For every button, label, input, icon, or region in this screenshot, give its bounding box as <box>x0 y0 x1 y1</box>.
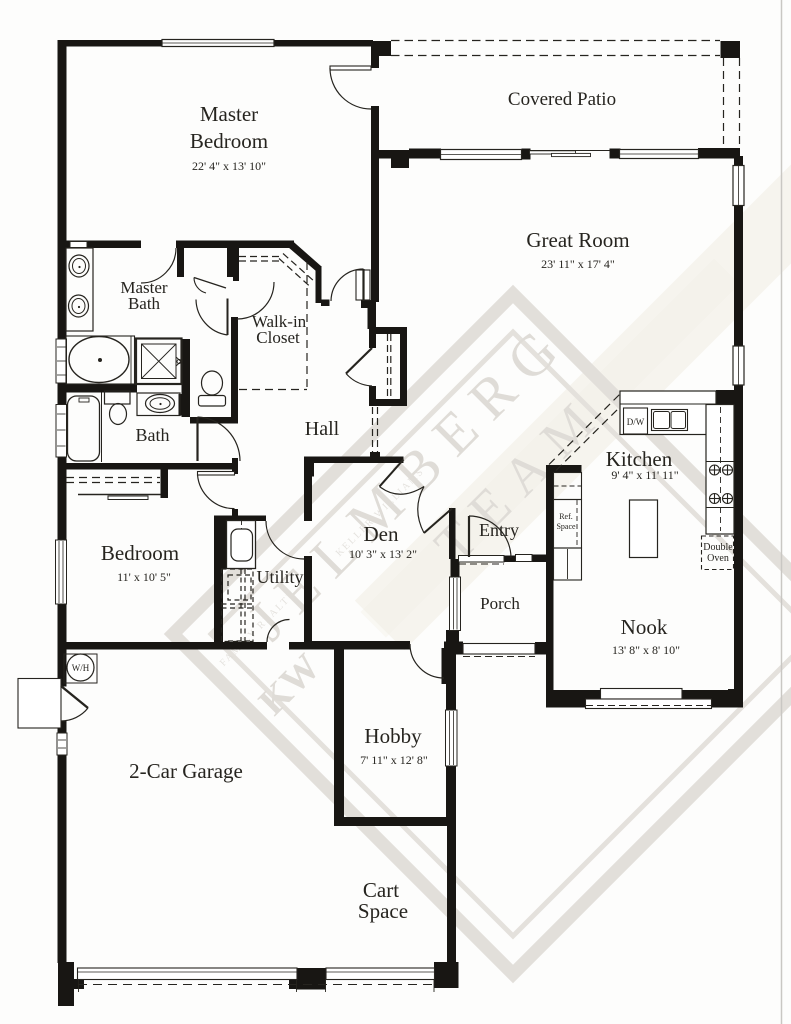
svg-text:Porch: Porch <box>480 594 520 613</box>
svg-text:Den: Den <box>364 522 399 546</box>
svg-text:Hall: Hall <box>305 418 340 440</box>
svg-text:Double: Double <box>703 542 733 553</box>
svg-text:2-Car Garage: 2-Car Garage <box>129 759 243 783</box>
svg-text:Utility: Utility <box>256 567 303 587</box>
svg-text:Ref.: Ref. <box>559 512 573 521</box>
svg-text:Entry: Entry <box>479 520 519 540</box>
svg-text:Bath: Bath <box>136 425 170 445</box>
svg-text:Great Room: Great Room <box>526 228 629 252</box>
svg-text:10' 3" x 13' 2": 10' 3" x 13' 2" <box>349 547 417 561</box>
svg-text:Bath: Bath <box>128 294 161 313</box>
svg-text:7' 11" x 12' 8": 7' 11" x 12' 8" <box>360 753 428 767</box>
svg-text:13' 8" x 8' 10": 13' 8" x 8' 10" <box>612 643 680 657</box>
svg-text:23' 11" x 17' 4": 23' 11" x 17' 4" <box>541 257 615 271</box>
svg-text:Bedroom: Bedroom <box>101 541 179 565</box>
svg-text:Covered Patio: Covered Patio <box>508 89 616 110</box>
svg-text:Nook: Nook <box>621 615 668 639</box>
svg-text:Space: Space <box>556 522 576 531</box>
svg-text:W/H: W/H <box>72 663 90 673</box>
svg-text:Space: Space <box>358 899 408 923</box>
svg-text:9' 4" x 11' 11": 9' 4" x 11' 11" <box>611 468 678 482</box>
svg-text:Oven: Oven <box>707 553 729 564</box>
svg-text:22' 4" x 13' 10": 22' 4" x 13' 10" <box>192 159 266 173</box>
svg-text:Hobby: Hobby <box>364 724 422 748</box>
svg-text:Closet: Closet <box>256 328 300 347</box>
svg-text:Master: Master <box>200 102 258 126</box>
svg-text:11' x 10' 5": 11' x 10' 5" <box>117 570 171 584</box>
svg-text:Bedroom: Bedroom <box>190 129 268 153</box>
svg-text:D/W: D/W <box>627 417 645 427</box>
